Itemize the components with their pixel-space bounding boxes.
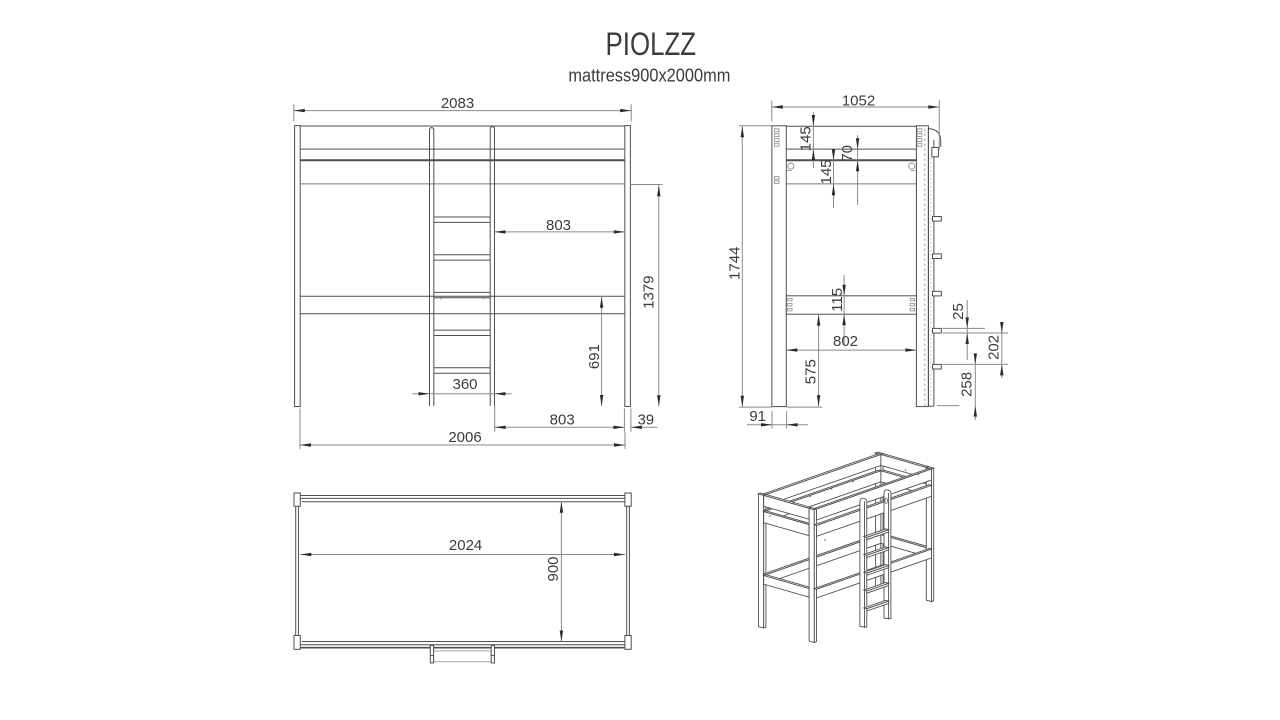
svg-text:70: 70 [839,145,856,162]
svg-text:91: 91 [749,408,766,425]
svg-text:115: 115 [829,288,846,312]
svg-text:mattress900x2000mm: mattress900x2000mm [568,65,730,86]
svg-text:575: 575 [802,359,819,384]
svg-text:691: 691 [586,344,603,369]
svg-text:360: 360 [452,376,477,393]
svg-text:803: 803 [546,217,571,234]
svg-text:2006: 2006 [448,429,481,446]
svg-text:39: 39 [637,412,654,429]
svg-text:803: 803 [550,412,575,429]
svg-text:258: 258 [958,372,975,397]
svg-text:PIOLZZ: PIOLZZ [606,26,697,62]
svg-text:1379: 1379 [641,276,658,309]
svg-text:1052: 1052 [842,92,875,109]
svg-text:202: 202 [985,335,1002,360]
svg-text:900: 900 [545,556,562,581]
svg-text:145: 145 [818,159,835,184]
svg-text:2024: 2024 [449,537,482,554]
svg-text:145: 145 [797,126,814,151]
svg-text:2083: 2083 [441,95,474,112]
svg-text:25: 25 [950,303,967,320]
svg-text:802: 802 [833,333,858,350]
svg-text:1744: 1744 [727,247,744,280]
